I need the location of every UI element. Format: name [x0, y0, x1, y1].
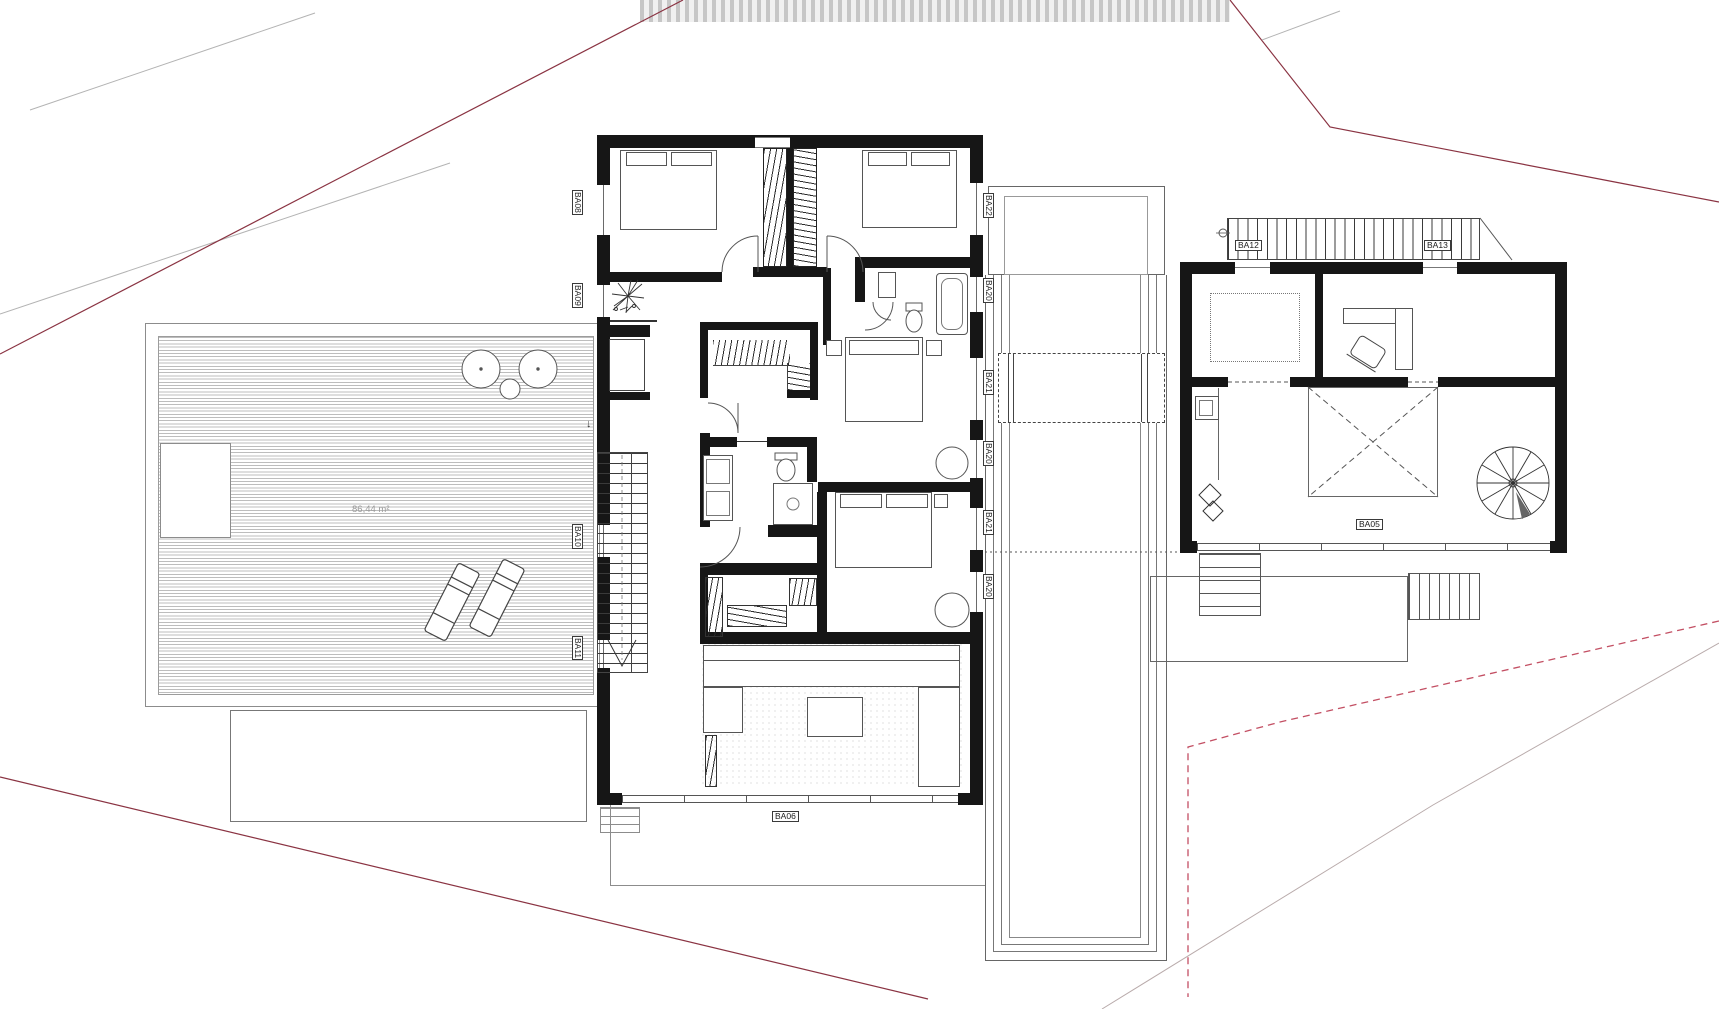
kitchen-sink-inner — [1199, 400, 1213, 416]
office-chair — [1347, 334, 1389, 372]
wall-thin — [610, 320, 657, 322]
window-glass — [603, 185, 604, 235]
wall-interior — [700, 563, 820, 575]
pool-step-line — [1147, 354, 1148, 422]
window-glass — [1423, 267, 1457, 268]
window-label: BA21 — [983, 370, 994, 395]
deck-area-label: 86,44 m² — [352, 504, 390, 515]
spiral-staircase — [1477, 447, 1549, 519]
sliding-door — [737, 441, 767, 442]
window-glass — [603, 285, 604, 317]
lower-terrace-outline — [230, 710, 587, 822]
wall-interior — [855, 257, 982, 268]
patio-edge-bottom — [610, 885, 985, 886]
deck-planter-opening — [160, 443, 231, 538]
window-label: BA22 — [983, 193, 994, 218]
sink — [706, 491, 730, 516]
closet-rail-hatch — [713, 340, 790, 366]
wall-interior — [855, 268, 865, 302]
ramp-label: BA12 — [1235, 240, 1262, 251]
wall-left — [597, 135, 610, 185]
ramp-label: BA13 — [1424, 240, 1451, 251]
wall-right — [970, 235, 983, 277]
wall-interior — [700, 322, 708, 398]
bed-pillow — [849, 340, 919, 355]
sofa-left-chaise — [703, 687, 743, 733]
wardrobe-hatch — [789, 578, 817, 606]
lift-cab — [609, 339, 645, 391]
boundary-red-line — [1230, 0, 1719, 202]
staircase-stringer — [631, 452, 632, 673]
wall-right — [970, 312, 983, 358]
window-top — [755, 137, 790, 148]
nightstand — [934, 494, 948, 508]
pool-dashed — [998, 353, 1165, 423]
annex-ramp — [1227, 218, 1480, 260]
wall-right — [970, 550, 983, 572]
window-label: BA09 — [572, 283, 583, 308]
decor-diamonds — [1199, 484, 1223, 521]
wall-interior — [597, 272, 722, 282]
sofa-cushion-line — [703, 660, 960, 661]
wall-bottom-corner — [597, 793, 622, 805]
annex-steps-right — [1408, 573, 1480, 620]
window-bottom-glazing — [622, 795, 958, 803]
window-label: BA08 — [572, 190, 583, 215]
wall-right — [970, 420, 983, 440]
ramp-start-marker — [1219, 229, 1227, 237]
wall-interior — [807, 437, 817, 482]
wall-interior — [700, 322, 818, 330]
sink — [878, 272, 896, 298]
annex-platform — [1150, 576, 1408, 662]
radiator — [705, 735, 717, 787]
sofa-back — [703, 645, 960, 687]
nightstand — [826, 340, 842, 356]
bathtub-inner — [941, 278, 963, 330]
pool-step-line — [1008, 354, 1009, 422]
window-glass — [976, 358, 977, 420]
window-label: BA20 — [983, 441, 994, 466]
annex-wall-top — [1457, 262, 1567, 274]
window-glass — [976, 508, 977, 550]
closet-rail-hatch — [787, 363, 810, 390]
annex-wall-bottom-corner — [1180, 541, 1197, 553]
window-glass — [1235, 267, 1270, 268]
sink — [706, 459, 730, 484]
shower — [773, 483, 813, 525]
wall-left — [597, 668, 610, 805]
wall-interior — [787, 390, 818, 398]
bed-pillow — [671, 152, 712, 166]
nightstand — [926, 340, 942, 356]
wardrobe-hatch — [763, 148, 787, 267]
boundary-gray-curve — [1102, 643, 1719, 1009]
wardrobe-hatch — [727, 605, 787, 627]
wall-right — [970, 135, 983, 183]
boundary-gray-line — [0, 163, 450, 314]
window-label: BA20 — [983, 278, 994, 303]
wardrobe-hatch — [793, 148, 817, 267]
bed-pillow — [886, 494, 928, 508]
annex-wall-interior — [1192, 377, 1228, 387]
site-hatch-band — [640, 0, 1230, 22]
bed-pillow — [868, 152, 907, 166]
upper-terrace-inner — [1004, 196, 1148, 275]
annex-rug — [1210, 293, 1300, 362]
boundary-gray-line — [30, 13, 315, 110]
annex-wall-top — [1270, 262, 1423, 274]
wall-bottom-corner — [958, 793, 983, 805]
annex-steps-left — [1199, 553, 1261, 616]
bed-pillow — [626, 152, 667, 166]
bed-pillow — [840, 494, 882, 508]
pool-step-line — [1013, 354, 1014, 422]
wall-interior — [768, 525, 817, 537]
wardrobe-hatch — [705, 577, 723, 637]
wall-interior — [823, 268, 831, 345]
floor-plan-canvas: 86,44 m² ↓ — [0, 0, 1719, 1009]
window-glass — [976, 572, 977, 612]
patio-steps — [600, 807, 640, 833]
bed-with-cross — [1308, 387, 1438, 497]
boundary-gray-line — [1262, 11, 1340, 40]
window-label: BA11 — [572, 636, 583, 660]
bed-pillow — [911, 152, 950, 166]
pool-step-line — [1141, 354, 1142, 422]
annex-wall-right — [1555, 262, 1567, 553]
annex-wall-interior — [1438, 377, 1555, 387]
deck-entry-arrow: ↓ — [586, 418, 592, 430]
annex-wall-left — [1180, 262, 1192, 553]
annex-wall-interior — [1315, 274, 1323, 383]
window-label: BA20 — [983, 574, 994, 599]
window-glass — [976, 183, 977, 235]
boundary-red-dashed-line — [1188, 621, 1719, 997]
staircase-main — [597, 452, 648, 673]
window-glass — [976, 440, 977, 478]
lift-shaft-wall — [605, 325, 650, 337]
annex-window-glazing — [1197, 543, 1550, 551]
lift-shaft-wall — [605, 392, 650, 400]
room-label: BA05 — [1356, 519, 1383, 530]
window-glass — [976, 277, 977, 312]
wall-interior — [818, 482, 978, 492]
annex-wall-bottom-corner — [1550, 541, 1567, 553]
sofa-right — [918, 687, 960, 787]
window-label: BA06 — [772, 811, 799, 822]
annex-wall-interior — [1290, 377, 1408, 387]
window-label: BA10 — [572, 524, 583, 549]
window-label: BA21 — [983, 510, 994, 535]
coffee-table — [807, 697, 863, 737]
desk — [1395, 308, 1413, 370]
round-table — [936, 447, 968, 479]
round-table — [935, 593, 969, 627]
indoor-plant-icon — [612, 280, 644, 313]
ramp-end-diagonal — [1480, 218, 1512, 260]
